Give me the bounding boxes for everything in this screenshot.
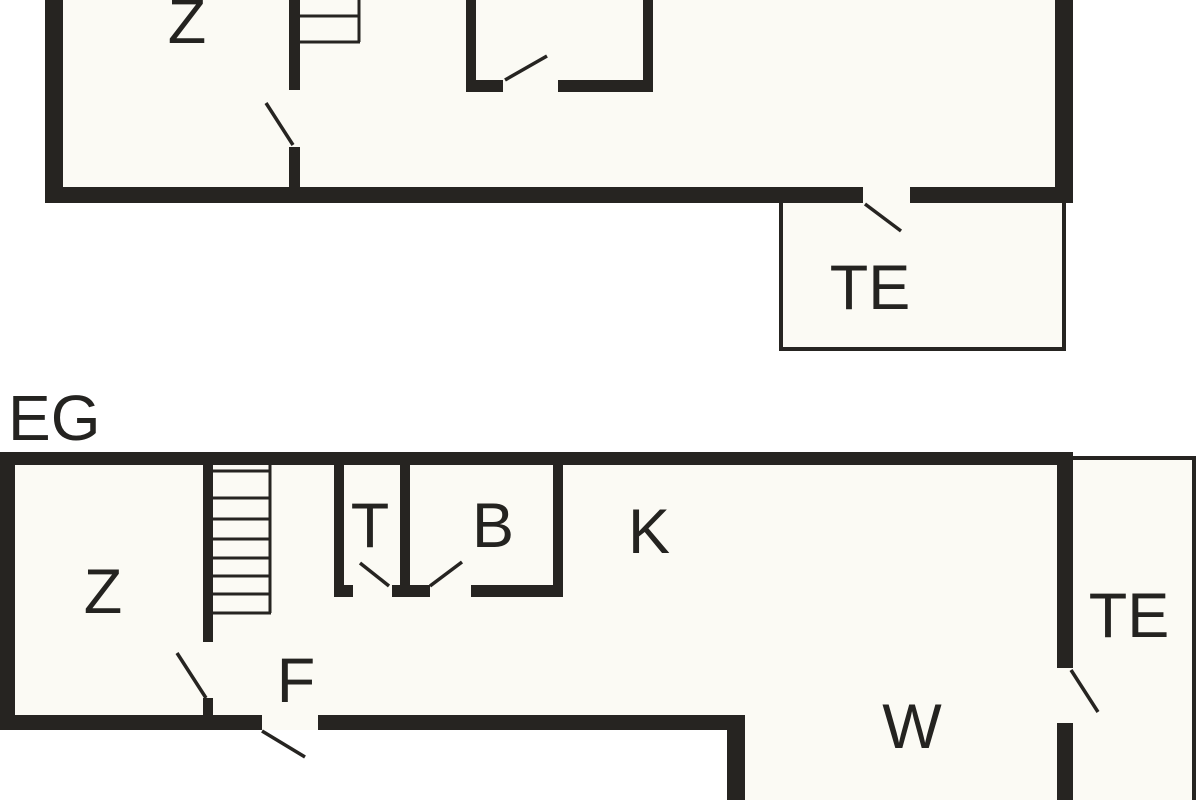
upper-midroom-bottom-wall-left (466, 80, 503, 92)
t-b-divider-wall (400, 465, 410, 597)
ground-room-label-z: Z (84, 557, 122, 627)
ground-right-wall-upper (1057, 452, 1073, 668)
upper-right-wall (1055, 0, 1073, 203)
ground-left-wall (0, 452, 15, 730)
ground-floor-label: EG (8, 382, 100, 454)
ground-room-label-t: T (351, 491, 389, 561)
upper-terrace-interior (779, 203, 1066, 351)
ground-right-wall-lower (1057, 723, 1073, 800)
t-room-left-wall (334, 465, 344, 597)
upper-bottom-wall-left (45, 187, 863, 203)
ground-room-label-b: B (472, 491, 514, 561)
b-room-bottom-wall (471, 585, 563, 597)
ground-room-label-k: K (628, 497, 670, 567)
upper-floor-plan: Z TE (45, 0, 1073, 351)
ground-bottom-wall-left (0, 715, 262, 730)
upper-room-label-z: Z (168, 0, 206, 57)
upper-midroom-bottom-wall-right (558, 80, 653, 92)
ground-stair-wall-stub (203, 698, 213, 715)
ground-room-label-f: F (277, 646, 315, 716)
ground-corner-wall-down (727, 715, 745, 800)
ground-bottom-wall-right (318, 715, 745, 730)
ground-floor-plan: EG (0, 382, 1196, 800)
ground-stair-wall (203, 465, 213, 642)
ground-top-wall (0, 452, 1073, 465)
ground-room-label-w: W (882, 692, 942, 762)
upper-left-wall (45, 0, 63, 203)
t-room-left-wall-foot (334, 585, 353, 597)
entrance-door (262, 731, 305, 757)
ground-room-label-te: TE (1089, 581, 1170, 651)
upper-partition-wall (289, 0, 300, 90)
b-room-right-wall (553, 465, 563, 597)
upper-partition-wall-stub (289, 147, 300, 187)
upper-bottom-wall-right (910, 187, 1073, 203)
upper-midroom-right-wall (643, 0, 653, 92)
t-b-divider-wall-foot (392, 585, 430, 597)
upper-midroom-left-wall (466, 0, 476, 92)
floor-plan-drawing: Z TE EG (0, 0, 1200, 800)
upper-room-label-te: TE (830, 253, 911, 323)
